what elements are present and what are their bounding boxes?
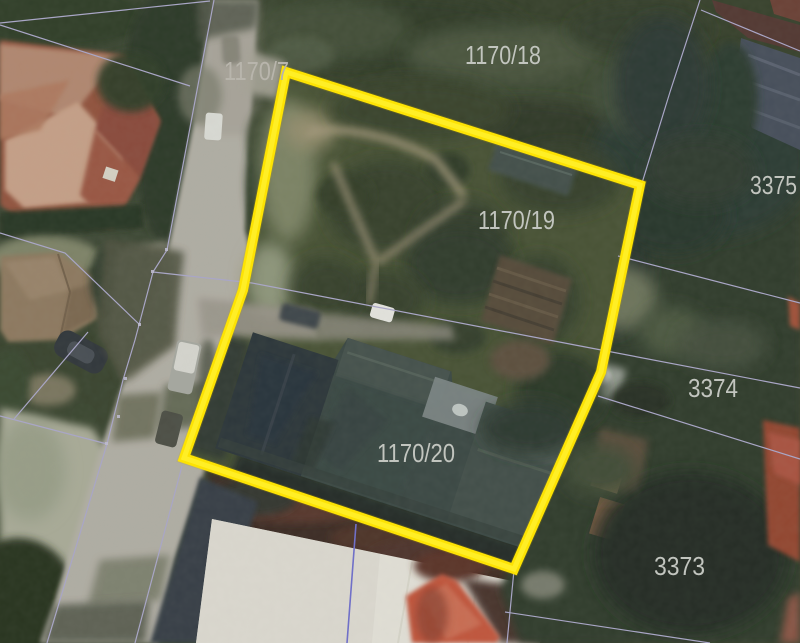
svg-text:3375: 3375 (750, 170, 797, 200)
svg-text:3373: 3373 (654, 551, 705, 581)
svg-text:1170/18: 1170/18 (465, 40, 541, 70)
svg-text:1170/19: 1170/19 (478, 205, 555, 235)
svg-text:1170/20: 1170/20 (377, 438, 455, 468)
svg-text:1170/7: 1170/7 (224, 56, 289, 86)
svg-text:3374: 3374 (688, 373, 738, 403)
